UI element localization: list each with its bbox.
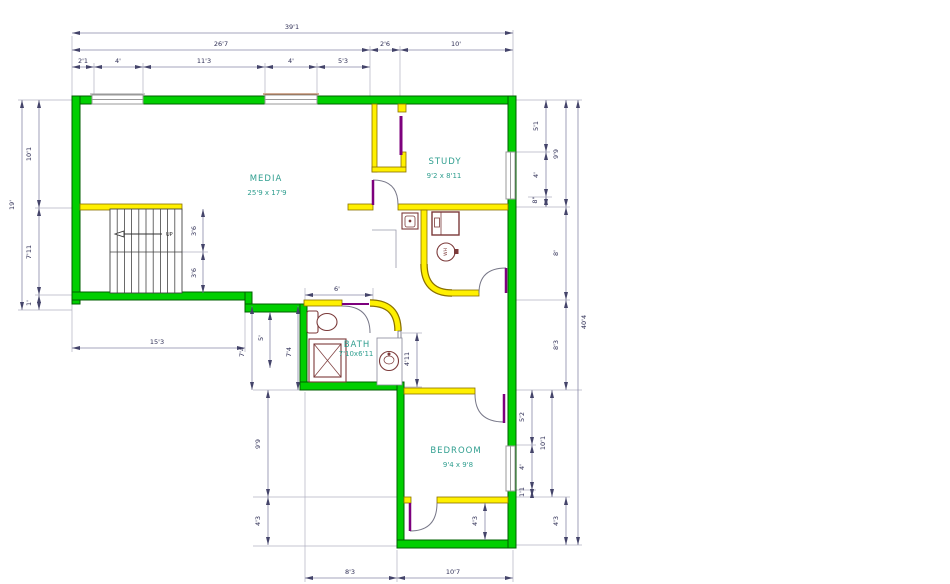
vanity-basin-inner xyxy=(384,356,394,364)
room-name: BEDROOM xyxy=(430,446,481,456)
dimension-label: 15'3 xyxy=(150,338,164,346)
water-heater-label: WH xyxy=(443,248,449,256)
room-size: 7'10x6'11 xyxy=(339,350,374,358)
dimension-label: 4' xyxy=(115,57,121,65)
dimension-label: 5'2 xyxy=(518,412,526,422)
dimension-label: 10' xyxy=(451,40,461,48)
dimension-label: 7'11 xyxy=(25,245,33,259)
dimension-label: 4'3 xyxy=(471,516,479,526)
study-closet-wall-bottom xyxy=(372,167,406,172)
dimension-label: 10'1 xyxy=(25,147,33,161)
dimension-label: 1'1 xyxy=(518,487,526,497)
study-laundry-wall xyxy=(398,204,508,210)
dimension-label: 2'6 xyxy=(380,40,390,48)
room-size: 9'2 x 8'11 xyxy=(427,172,462,180)
washer-door xyxy=(435,218,440,227)
dimension-label: 4' xyxy=(518,464,526,470)
bedroom-closet-wall-stub xyxy=(404,497,411,503)
dimension-label: 40'4 xyxy=(580,315,588,329)
dimension-label: 7'4 xyxy=(238,347,246,357)
dimension-label: 6' xyxy=(334,285,340,293)
dimension-label: 2'1 xyxy=(78,57,88,65)
study-closet-wall-left xyxy=(372,104,377,172)
bedroom-door-arc xyxy=(475,394,504,422)
dimension-label: 8'3 xyxy=(345,568,355,576)
doors xyxy=(342,116,506,531)
dimension-label: 9'9 xyxy=(254,439,262,449)
laundry-fixtures: WH xyxy=(372,212,459,268)
bath-wall-top xyxy=(304,300,342,306)
dimension-label: 19' xyxy=(8,200,16,210)
room-name: MEDIA xyxy=(250,174,283,184)
dimension-label: 5' xyxy=(257,335,265,341)
dimension-label: 11'3 xyxy=(197,57,211,65)
exterior-wall-bottom xyxy=(397,540,516,548)
dimension-label: 8" xyxy=(531,196,539,203)
exterior-wall-bath-left xyxy=(300,304,307,390)
laundry-curved-wall-fill xyxy=(424,264,452,293)
floor-plan-page: UP WH 39'126'72'610'2'14'11'34'5'319'10'… xyxy=(0,0,950,584)
top-wall-stub xyxy=(398,104,406,112)
hall-door-arc xyxy=(479,268,506,293)
dimension-label: 4' xyxy=(532,172,540,178)
room-size: 25'9 x 17'9 xyxy=(247,189,286,197)
exterior-wall-left xyxy=(72,96,80,304)
dimension-label: 4'11 xyxy=(403,352,411,366)
water-heater-pipe xyxy=(454,249,459,254)
bath-door-arc xyxy=(342,306,370,333)
counter-outline xyxy=(372,230,396,268)
vanity-faucet-dot xyxy=(388,353,390,355)
dimension-label: 39'1 xyxy=(285,23,299,31)
laundry-wall-vertical xyxy=(421,210,427,265)
dimension-label: 10'7 xyxy=(446,568,460,576)
dimension-label: 7'4 xyxy=(285,347,293,357)
bedroom-closet-wall xyxy=(437,497,508,503)
hall-wall-left xyxy=(348,204,373,210)
dimension-label: 4'3 xyxy=(552,516,560,526)
stair-up-label: UP xyxy=(166,232,173,238)
toilet-tank xyxy=(307,311,318,333)
floor-plan-drawing: UP WH 39'126'72'610'2'14'11'34'5'319'10'… xyxy=(0,0,950,584)
dimension-label: 1' xyxy=(25,300,33,306)
bedroom-wall-top xyxy=(404,388,475,394)
dimension-label: 5'1 xyxy=(532,121,540,131)
laundry-sink-drain xyxy=(409,220,411,222)
dimension-label: 8'3 xyxy=(552,340,560,350)
stairs: UP xyxy=(110,209,182,293)
dimension-label: 4'3 xyxy=(254,516,262,526)
study-door-arc xyxy=(373,180,398,205)
laundry-wall-horizontal xyxy=(450,290,479,296)
dimension-label: 5'3 xyxy=(338,57,348,65)
dimension-label: 8' xyxy=(552,250,560,256)
room-name: BATH xyxy=(344,340,371,350)
bedroom-closet-door-arc xyxy=(410,503,437,531)
room-size: 9'4 x 9'8 xyxy=(443,461,473,469)
dimension-label: 3'6 xyxy=(190,268,198,278)
room-name: STUDY xyxy=(428,157,461,167)
dimension-label: 3'6 xyxy=(190,226,198,236)
dimension-label: 10'1 xyxy=(539,436,547,450)
exterior-wall-bedroom-left xyxy=(397,382,404,548)
dimension-label: 26'7 xyxy=(214,40,228,48)
dimension-label: 4' xyxy=(288,57,294,65)
dimension-label: 9'9 xyxy=(552,149,560,159)
toilet-bowl xyxy=(317,314,337,331)
